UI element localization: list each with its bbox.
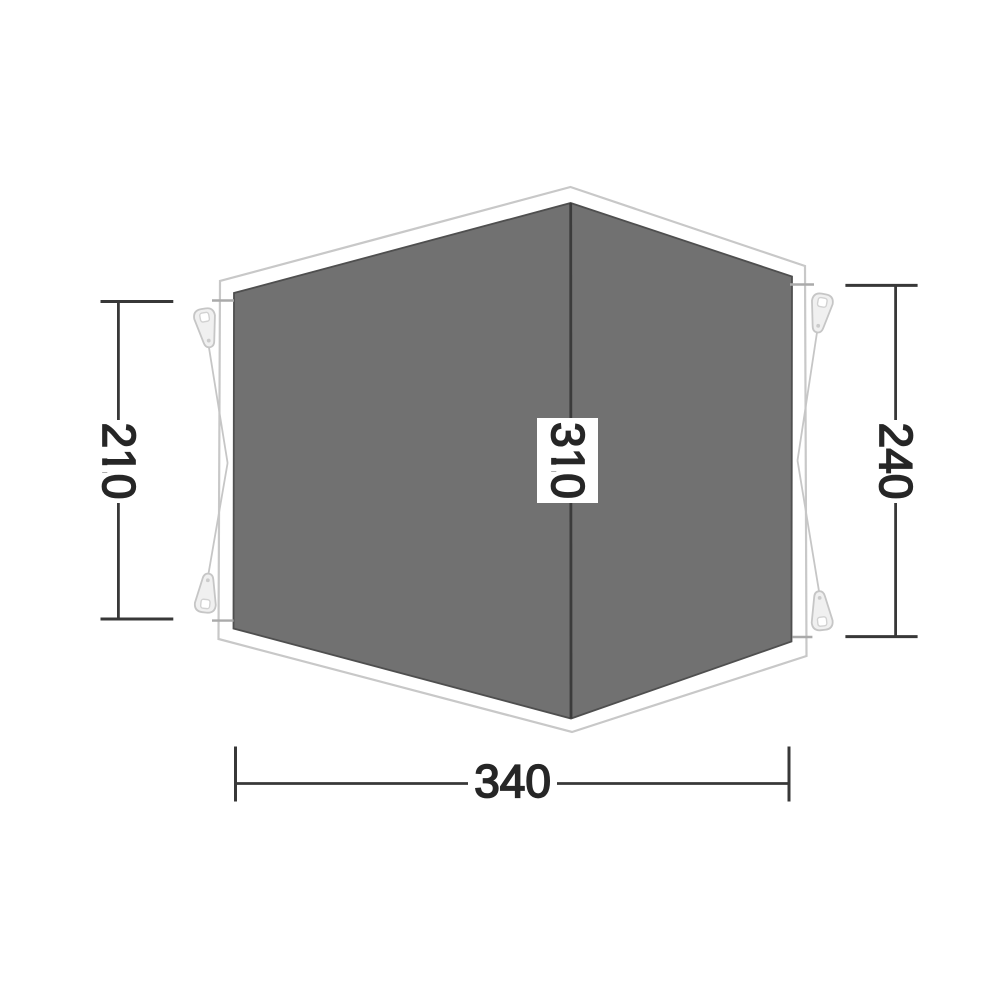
svg-text:240: 240 [870,423,922,500]
svg-text:210: 210 [93,423,145,500]
svg-text:340: 340 [474,755,551,807]
svg-text:310: 310 [542,422,594,499]
